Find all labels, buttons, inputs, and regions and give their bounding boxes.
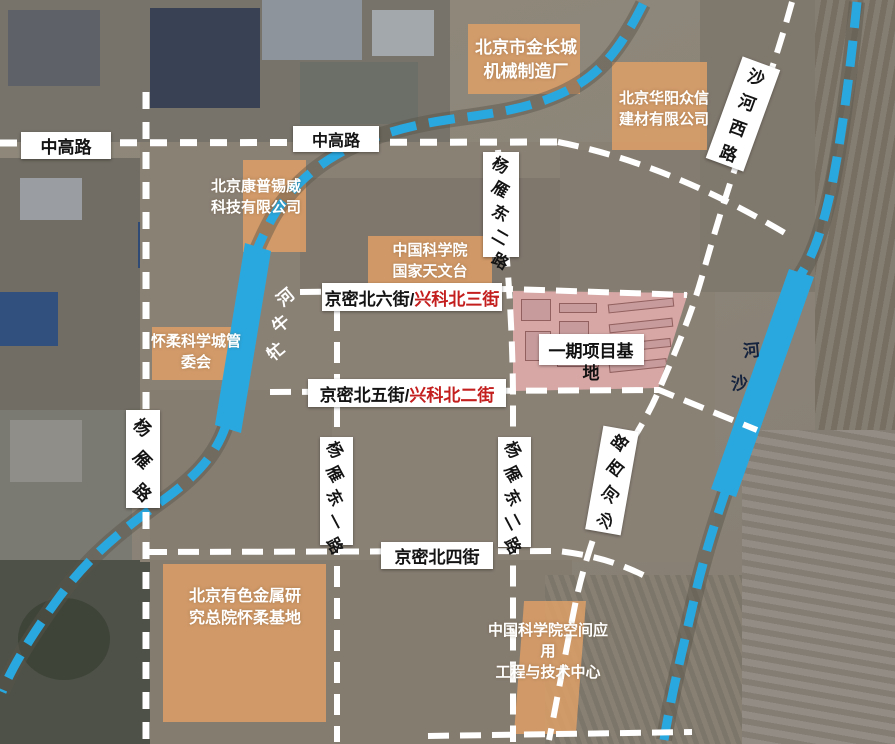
phase1-label: 一期项目基 地 xyxy=(530,334,652,384)
jingmi-bei5-name: 京密北五街/ xyxy=(320,381,410,406)
road-label-jingmi-bei4: 京密北四街 xyxy=(381,542,493,569)
road-label-yangyan-dong1: 杨雁东一路 xyxy=(320,437,353,545)
zhonggao-east-curve-road xyxy=(558,142,790,236)
road-label-jingmi-bei5: 京密北五街/兴科北二街 xyxy=(308,379,506,407)
site-label-tianwentai: 中国科学院 国家天文台 xyxy=(368,240,492,282)
site-label-jinchangcheng: 北京市金长城 机械制造厂 xyxy=(445,36,607,84)
road-label-jingmi-bei6: 京密北六街/兴科北三街 xyxy=(322,283,502,311)
road-label-yangyanlu: 杨雁路 xyxy=(126,410,160,508)
jingmi-bei5-alt-name: 兴科北二街 xyxy=(409,381,494,406)
site-label-huayang: 北京华阳众信 建材有限公司 xyxy=(608,88,720,130)
satellite-planning-map: 北京市金长城 机械制造厂 北京华阳众信 建材有限公司 北京康普锡威 科技有限公司… xyxy=(0,0,895,744)
road-label-zhonggao-center: 中高路 xyxy=(293,126,379,152)
site-label-guanweihui: 怀柔科学城管 委会 xyxy=(146,331,246,373)
site-label-kongjian: 中国科学院空间应 用 工程与技术中心 xyxy=(472,620,624,683)
jingmi-bei6-name: 京密北六街/ xyxy=(325,285,415,310)
road-label-zhonggao-left: 中高路 xyxy=(21,132,111,159)
road-label-yangyan-dong2-lower: 杨雁东二路 xyxy=(498,437,531,547)
phase1-label-line1: 一期项目基 xyxy=(539,334,644,365)
south-boundary-road xyxy=(428,732,692,736)
site-label-youse: 北京有色金属研 究总院怀柔基地 xyxy=(170,586,320,631)
jingmi-bei6-alt-name: 兴科北三街 xyxy=(414,285,499,310)
road-label-yangyan-dong2-upper: 杨雁东二路 xyxy=(483,152,519,257)
site-label-kangpu: 北京康普锡威 科技有限公司 xyxy=(200,176,312,218)
phase1-label-line2: 地 xyxy=(530,365,652,384)
